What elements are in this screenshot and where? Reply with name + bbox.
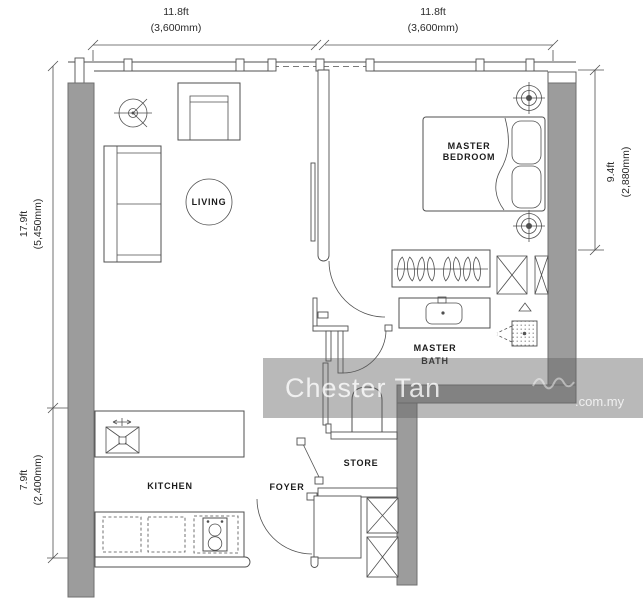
shower-head-triangle — [519, 303, 531, 311]
shower-drain — [523, 332, 527, 336]
appliance-dashed-box — [148, 517, 185, 552]
knob — [221, 520, 224, 523]
shower-area — [497, 303, 537, 346]
room-label-living: LIVING — [192, 197, 227, 207]
pillow — [512, 121, 541, 164]
sink-diagonal — [125, 443, 139, 453]
living-label: LIVING — [186, 179, 232, 225]
cooktop-outline — [203, 518, 227, 551]
dim-label-mm: (3,600mm) — [151, 22, 202, 34]
kitchen-island — [95, 411, 244, 457]
foyer-cabinet — [314, 496, 361, 558]
hanger-icon — [452, 257, 461, 282]
dim-label-ft: 11.8ft — [420, 6, 446, 18]
store-top-wall — [331, 432, 397, 439]
bath-top-wall — [313, 326, 348, 331]
window-mullion — [526, 59, 534, 71]
right-wall — [548, 83, 576, 385]
corner-step — [548, 72, 576, 83]
burner — [209, 524, 221, 536]
window-mullion — [268, 59, 276, 71]
divider-wall — [318, 70, 329, 261]
dim-label-ft: 11.8ft — [163, 6, 189, 18]
kitchen: KITCHEN — [95, 411, 250, 567]
appliance-dashed-box — [103, 517, 141, 552]
bedroom-door-arc — [329, 261, 385, 317]
dimension-right: 9.4ft (2,880mm) — [578, 65, 632, 255]
watermark-domain: .com.my — [575, 394, 625, 409]
spray-dash — [497, 335, 512, 342]
cooktop — [203, 518, 227, 551]
foyer: FOYER — [257, 482, 317, 554]
kitchen-counter — [95, 512, 244, 557]
store-door-leaf — [303, 444, 319, 477]
dimension-top-left: 11.8ft (3,600mm) — [88, 6, 321, 61]
roll-holder — [318, 312, 328, 318]
pillow — [512, 166, 541, 208]
appliance-dashed-box — [194, 516, 238, 553]
drain-dot — [441, 311, 444, 314]
room-label-master-bedroom-2: BEDROOM — [443, 152, 496, 162]
window-mullion — [75, 58, 84, 83]
sliding-panel — [311, 163, 315, 241]
room-label-master-bedroom-1: MASTER — [448, 141, 491, 151]
dim-label-mm: (2,400mm) — [32, 455, 44, 506]
burner — [208, 537, 222, 551]
room-label-foyer: FOYER — [269, 482, 304, 492]
room-label-kitchen: KITCHEN — [147, 481, 193, 491]
wardrobe — [392, 250, 490, 287]
armchair-outline — [178, 83, 240, 140]
dimension-left: 17.9ft (5,450mm) 7.9ft (2,400mm) — [18, 61, 68, 563]
floor-plan-page: 11.8ft (3,600mm) 11.8ft (3,600mm) 17.9ft… — [0, 0, 643, 600]
door-jamb — [315, 477, 323, 484]
pocket-wall — [326, 331, 331, 361]
wardrobe-outline — [392, 250, 490, 287]
sofa — [104, 146, 161, 262]
armchair-seat — [190, 96, 228, 140]
blanket-fold — [496, 118, 509, 210]
dim-label-ft: 7.9ft — [18, 470, 30, 491]
bed — [423, 117, 545, 211]
dim-label-mm: (2,880mm) — [620, 147, 632, 198]
sink-diagonal — [106, 443, 120, 453]
floor-plan: 11.8ft (3,600mm) 11.8ft (3,600mm) 17.9ft… — [0, 0, 643, 600]
entry-door-arc — [257, 499, 312, 554]
kitchen-bottom-wall — [95, 557, 250, 567]
dim-label-ft: 9.4ft — [605, 162, 617, 183]
dim-label-mm: (5,450mm) — [32, 199, 44, 250]
wall-end-cap — [311, 557, 318, 568]
master-bedroom: MASTER BEDROOM — [311, 70, 545, 317]
dim-label-ft: 17.9ft — [18, 211, 30, 237]
lower-right-wall — [397, 403, 417, 585]
living-room: LIVING — [104, 83, 240, 262]
service-shafts — [367, 498, 398, 577]
watermark-name: Chester Tan — [285, 373, 441, 403]
window-mullion — [124, 59, 132, 71]
pocket-wall — [326, 424, 331, 433]
room-label-store: STORE — [344, 458, 379, 468]
sink-drain — [119, 437, 126, 444]
window-mullion — [316, 59, 324, 71]
armchair — [178, 83, 240, 140]
kitchen-sink — [106, 418, 139, 453]
dim-label-mm: (3,600mm) — [408, 22, 459, 34]
dimension-top-right: 11.8ft (3,600mm) — [319, 6, 558, 61]
sink-diagonal — [125, 427, 139, 437]
hanger-icon — [396, 257, 405, 282]
door-jamb — [385, 325, 392, 331]
hanger-icon — [406, 257, 415, 282]
window-mullion — [236, 59, 244, 71]
sink-diagonal — [106, 427, 120, 437]
window-mullion — [366, 59, 374, 71]
window-mullion — [476, 59, 484, 71]
vanity-sink — [399, 297, 490, 328]
downlight-icon — [513, 82, 545, 114]
left-wall — [68, 83, 94, 597]
hanger-icon — [442, 257, 451, 282]
knob — [207, 520, 210, 523]
bath-tiles — [497, 256, 548, 294]
spray-dash — [497, 326, 512, 333]
door-jamb — [297, 438, 305, 445]
downlight-icon — [513, 210, 545, 242]
room-label-master-bath-1: MASTER — [414, 343, 457, 353]
watermark: Chester Tan .com.my — [263, 358, 643, 418]
ceiling-fan-icon — [114, 99, 152, 127]
